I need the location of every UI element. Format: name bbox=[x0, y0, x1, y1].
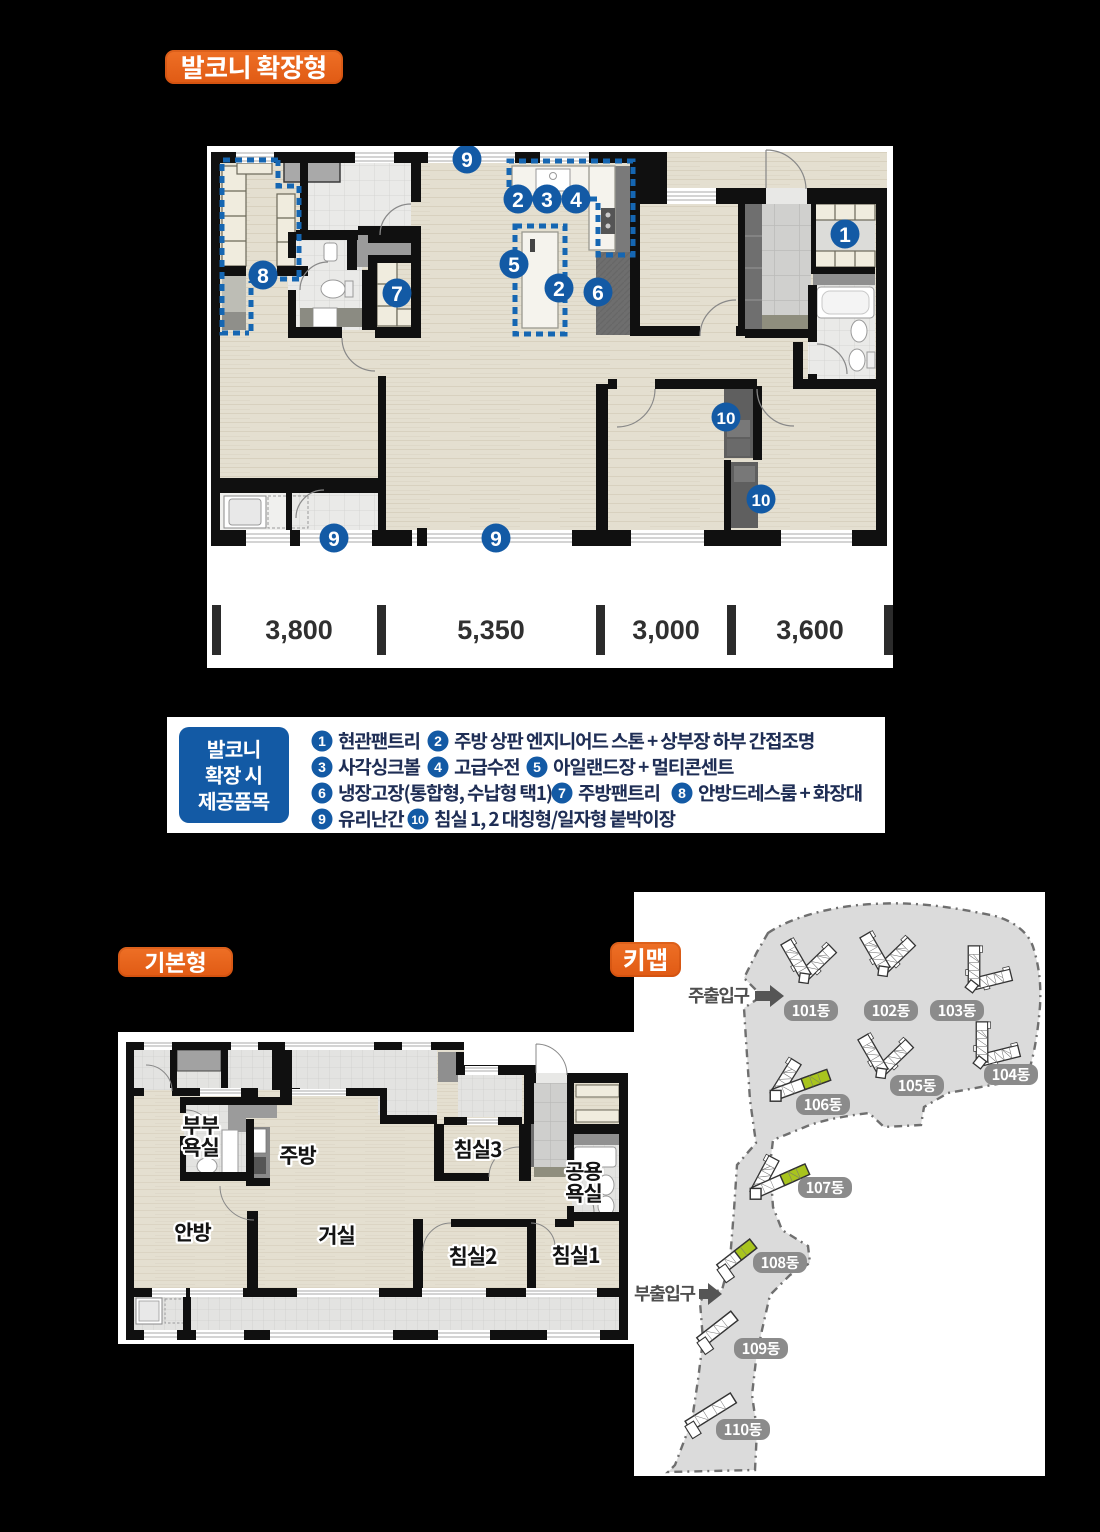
svg-text:6: 6 bbox=[318, 785, 326, 801]
svg-text:3: 3 bbox=[318, 759, 326, 775]
svg-text:4: 4 bbox=[434, 759, 442, 775]
svg-text:1: 1 bbox=[318, 733, 326, 749]
svg-text:10: 10 bbox=[411, 813, 425, 827]
svg-text:7: 7 bbox=[558, 785, 566, 801]
svg-text:9: 9 bbox=[318, 811, 326, 827]
svg-text:2: 2 bbox=[434, 733, 442, 749]
svg-text:8: 8 bbox=[678, 785, 686, 801]
svg-text:5: 5 bbox=[533, 759, 541, 775]
